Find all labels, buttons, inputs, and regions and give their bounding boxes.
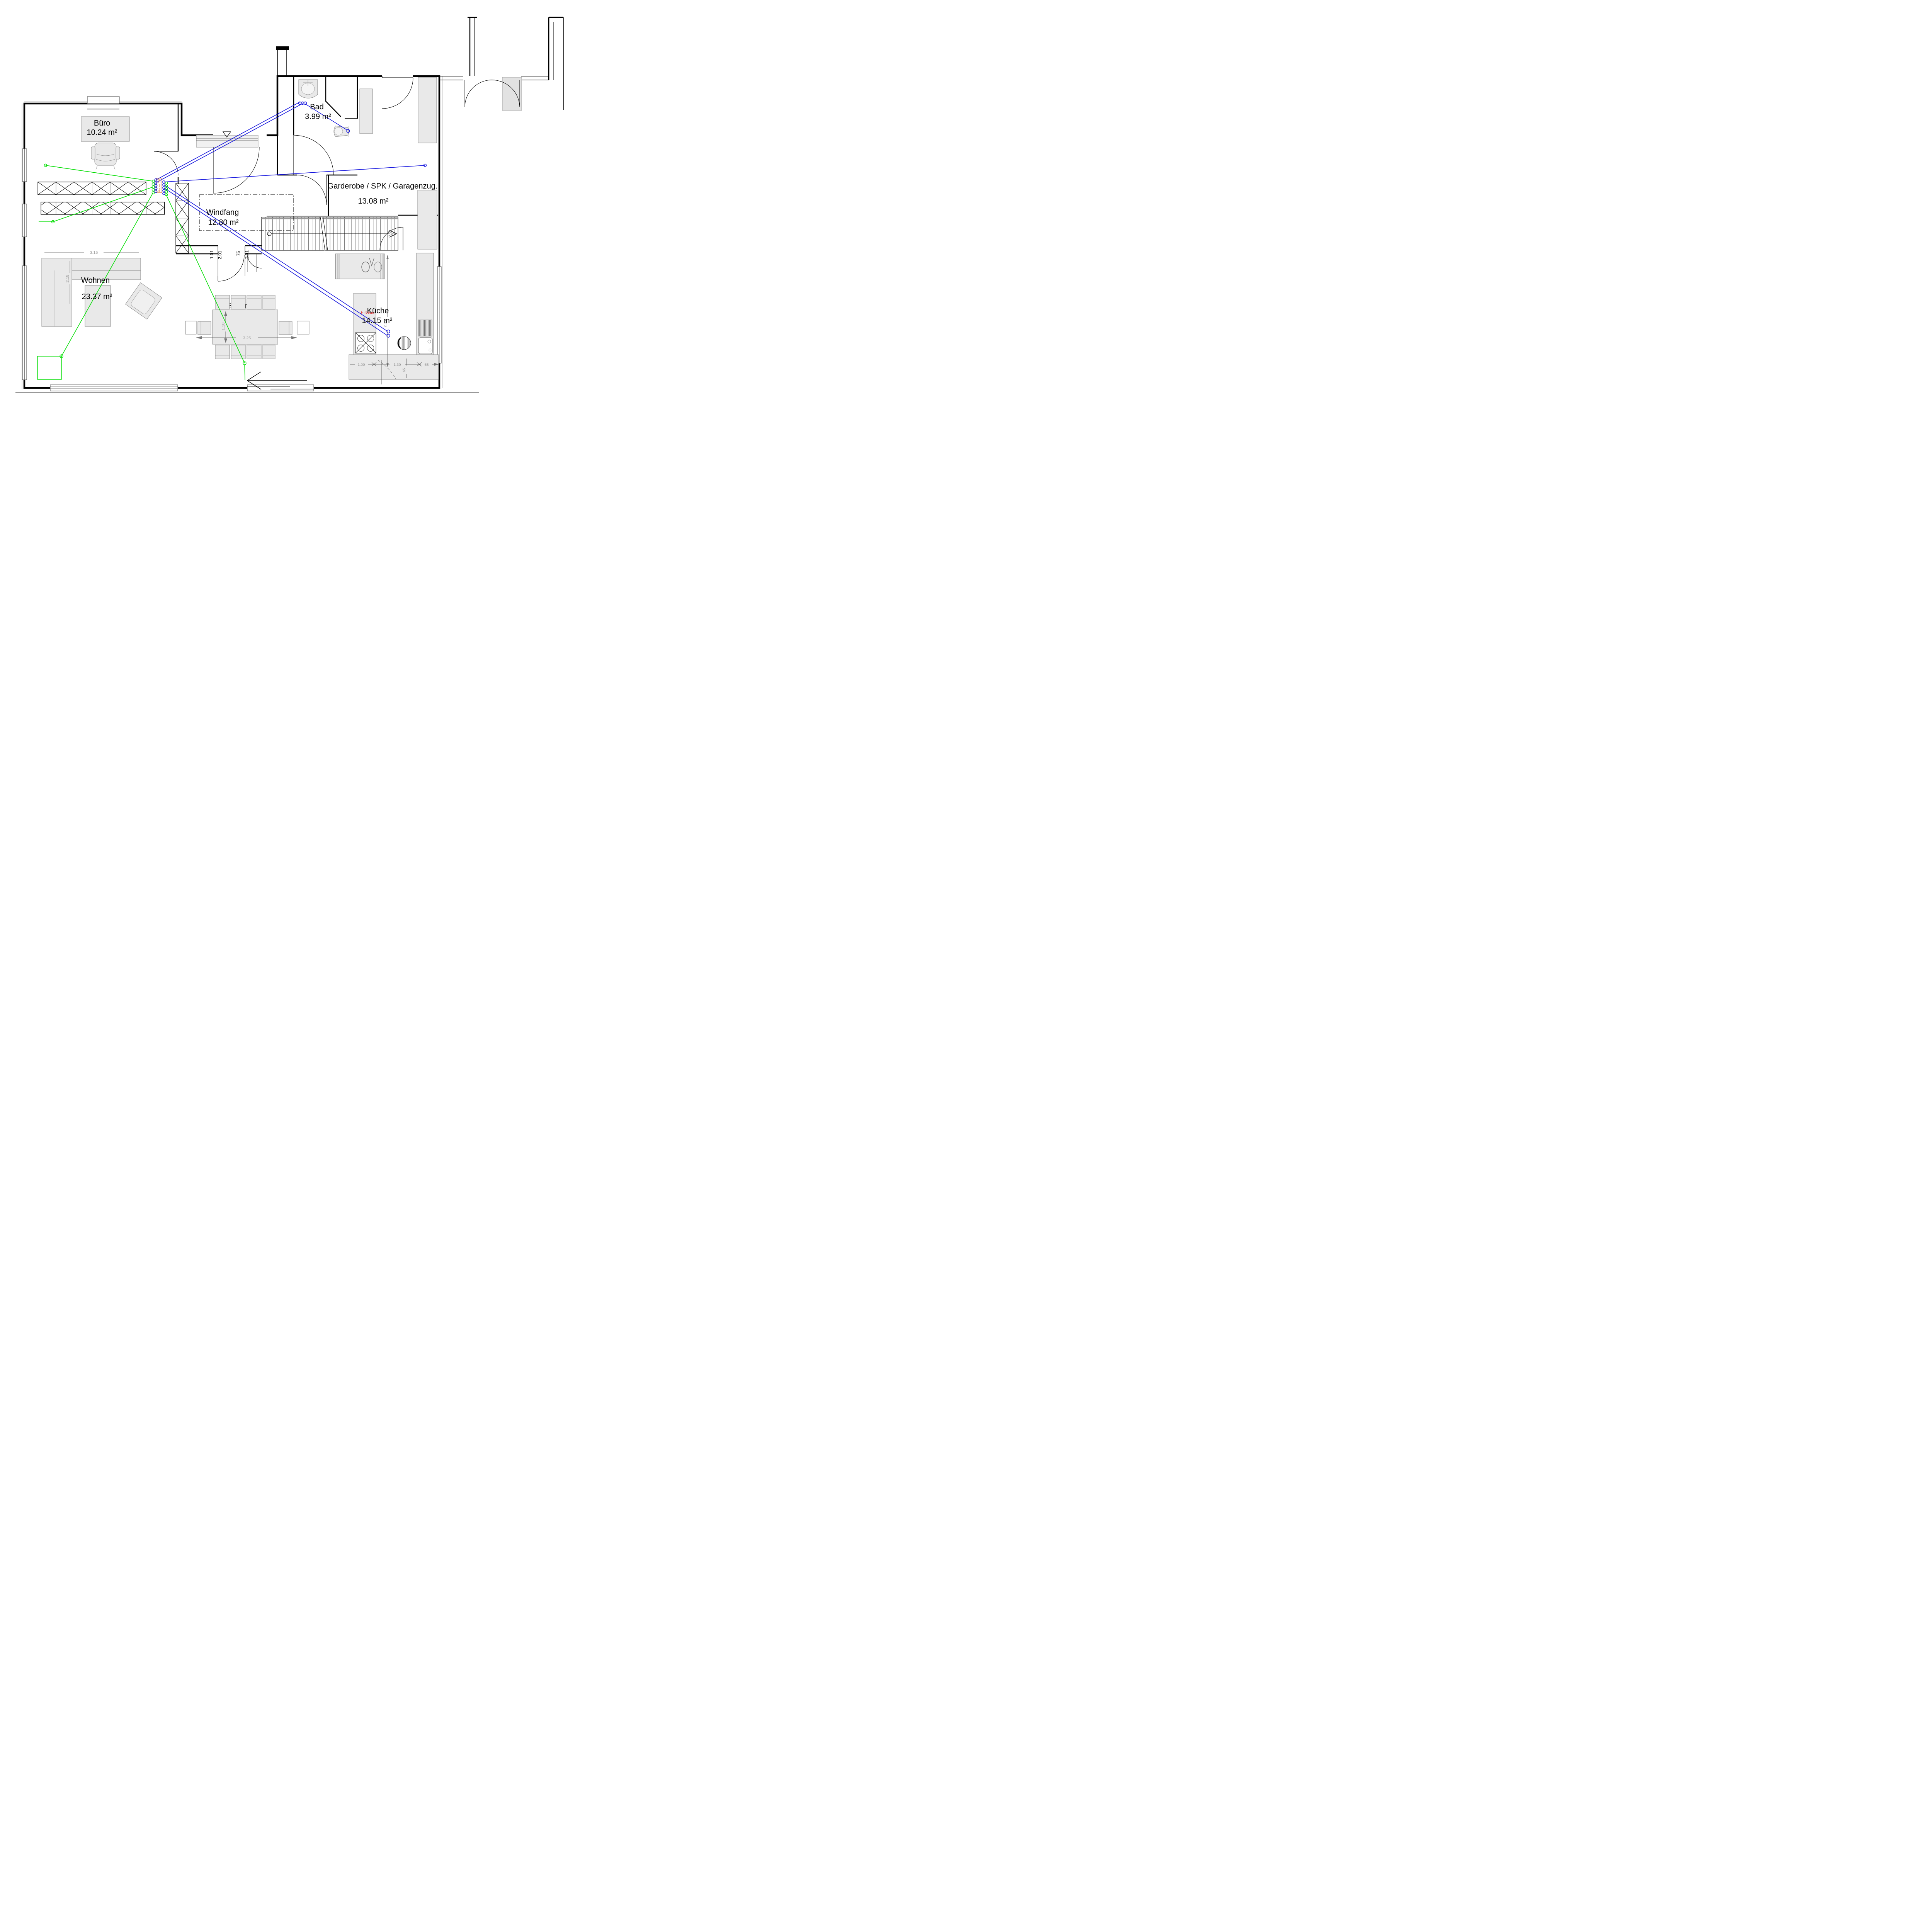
room-label-kueche: Küche: [367, 307, 389, 315]
svg-text:65: 65: [425, 363, 429, 367]
window-bottom-left: [50, 385, 178, 391]
chair-outline-right: [297, 321, 309, 334]
door-buero: [154, 151, 178, 175]
room-area-garderobe: 13.08 m²: [358, 197, 389, 206]
floorplan-canvas: 3.15 2.15 Essen: [0, 0, 598, 423]
stove: [355, 333, 376, 353]
door-garderobe-top: [382, 75, 413, 109]
stairs: [262, 216, 398, 250]
wardrobe-right-lower: [418, 190, 437, 249]
kitchen-sink: [418, 338, 432, 354]
svg-text:2.01: 2.01: [218, 251, 223, 259]
wardrobe-left: [360, 89, 372, 134]
svg-text:1.30: 1.30: [394, 363, 401, 367]
entrance: [196, 132, 267, 193]
bad-chamfer-wall: [326, 76, 341, 117]
hatched-wall-band-1: [38, 182, 146, 195]
bad-fixtures: [299, 80, 349, 137]
bathroom-sink: [299, 80, 318, 98]
hatched-wall-band-2: [41, 202, 165, 214]
svg-text:1.10: 1.10: [221, 323, 226, 331]
cable-hub: Mauer OG: [152, 178, 167, 196]
room-area-bad: 3.99 m²: [305, 112, 331, 121]
room-area-kueche: 14.15 m²: [362, 316, 393, 325]
svg-text:2.15: 2.15: [65, 275, 70, 283]
boiler: [398, 337, 411, 350]
window-buero-top: [87, 97, 119, 110]
dining-chair-right: [279, 321, 292, 335]
door-dimension-texts: 1.01 2.01 75 2.01: [210, 250, 250, 259]
room-label-garderobe: Garderobe / SPK / Garagenzug.: [328, 182, 438, 190]
svg-text:3.25: 3.25: [243, 336, 251, 340]
dining-chairs-bottom: [215, 345, 275, 359]
floorplan-page: 3.15 2.15 Essen: [0, 0, 598, 423]
room-label-wohnen: Wohnen: [81, 276, 110, 285]
room-area-wohnen: 23.37 m²: [82, 292, 112, 301]
garage-partial: [439, 17, 563, 110]
door-bad: [294, 135, 333, 175]
svg-text:3.15: 3.15: [90, 250, 98, 255]
svg-text:2.01: 2.01: [245, 250, 250, 259]
chair-outline-left: [185, 321, 196, 334]
office-chair: [91, 143, 120, 170]
dining-set: 3.25 1.10: [185, 295, 309, 359]
dining-chairs-top: [215, 295, 275, 309]
room-area-windfang: 12.80 m²: [208, 218, 239, 227]
mauer-og-label: Mauer OG: [158, 178, 161, 192]
room-label-buero: Büro: [94, 119, 110, 127]
dish-drainer: [418, 320, 432, 336]
room-label-windfang: Windfang: [206, 208, 239, 217]
door-garderobe-hall: [297, 175, 327, 205]
door-entrance: [213, 147, 259, 193]
kitchen-island: [335, 254, 384, 279]
room-area-buero: 10.24 m²: [87, 128, 117, 137]
chimney-stub: [276, 46, 289, 76]
wohnen-furniture: 3.15 2.15: [42, 250, 162, 326]
svg-text:1.01: 1.01: [210, 250, 214, 259]
svg-text:1.00: 1.00: [358, 363, 365, 367]
room-label-bad: Bad: [310, 103, 324, 111]
dining-chair-left: [198, 321, 211, 335]
svg-text:65: 65: [402, 368, 406, 372]
blue-endpoints-kueche: [387, 334, 390, 337]
armchair: [126, 283, 162, 320]
garage-wall-section: [502, 77, 522, 110]
slider-door-bottom: [247, 372, 314, 391]
svg-text:75: 75: [236, 251, 241, 256]
wardrobe-right-upper: [418, 77, 437, 143]
green-floor-zone: [37, 356, 61, 379]
